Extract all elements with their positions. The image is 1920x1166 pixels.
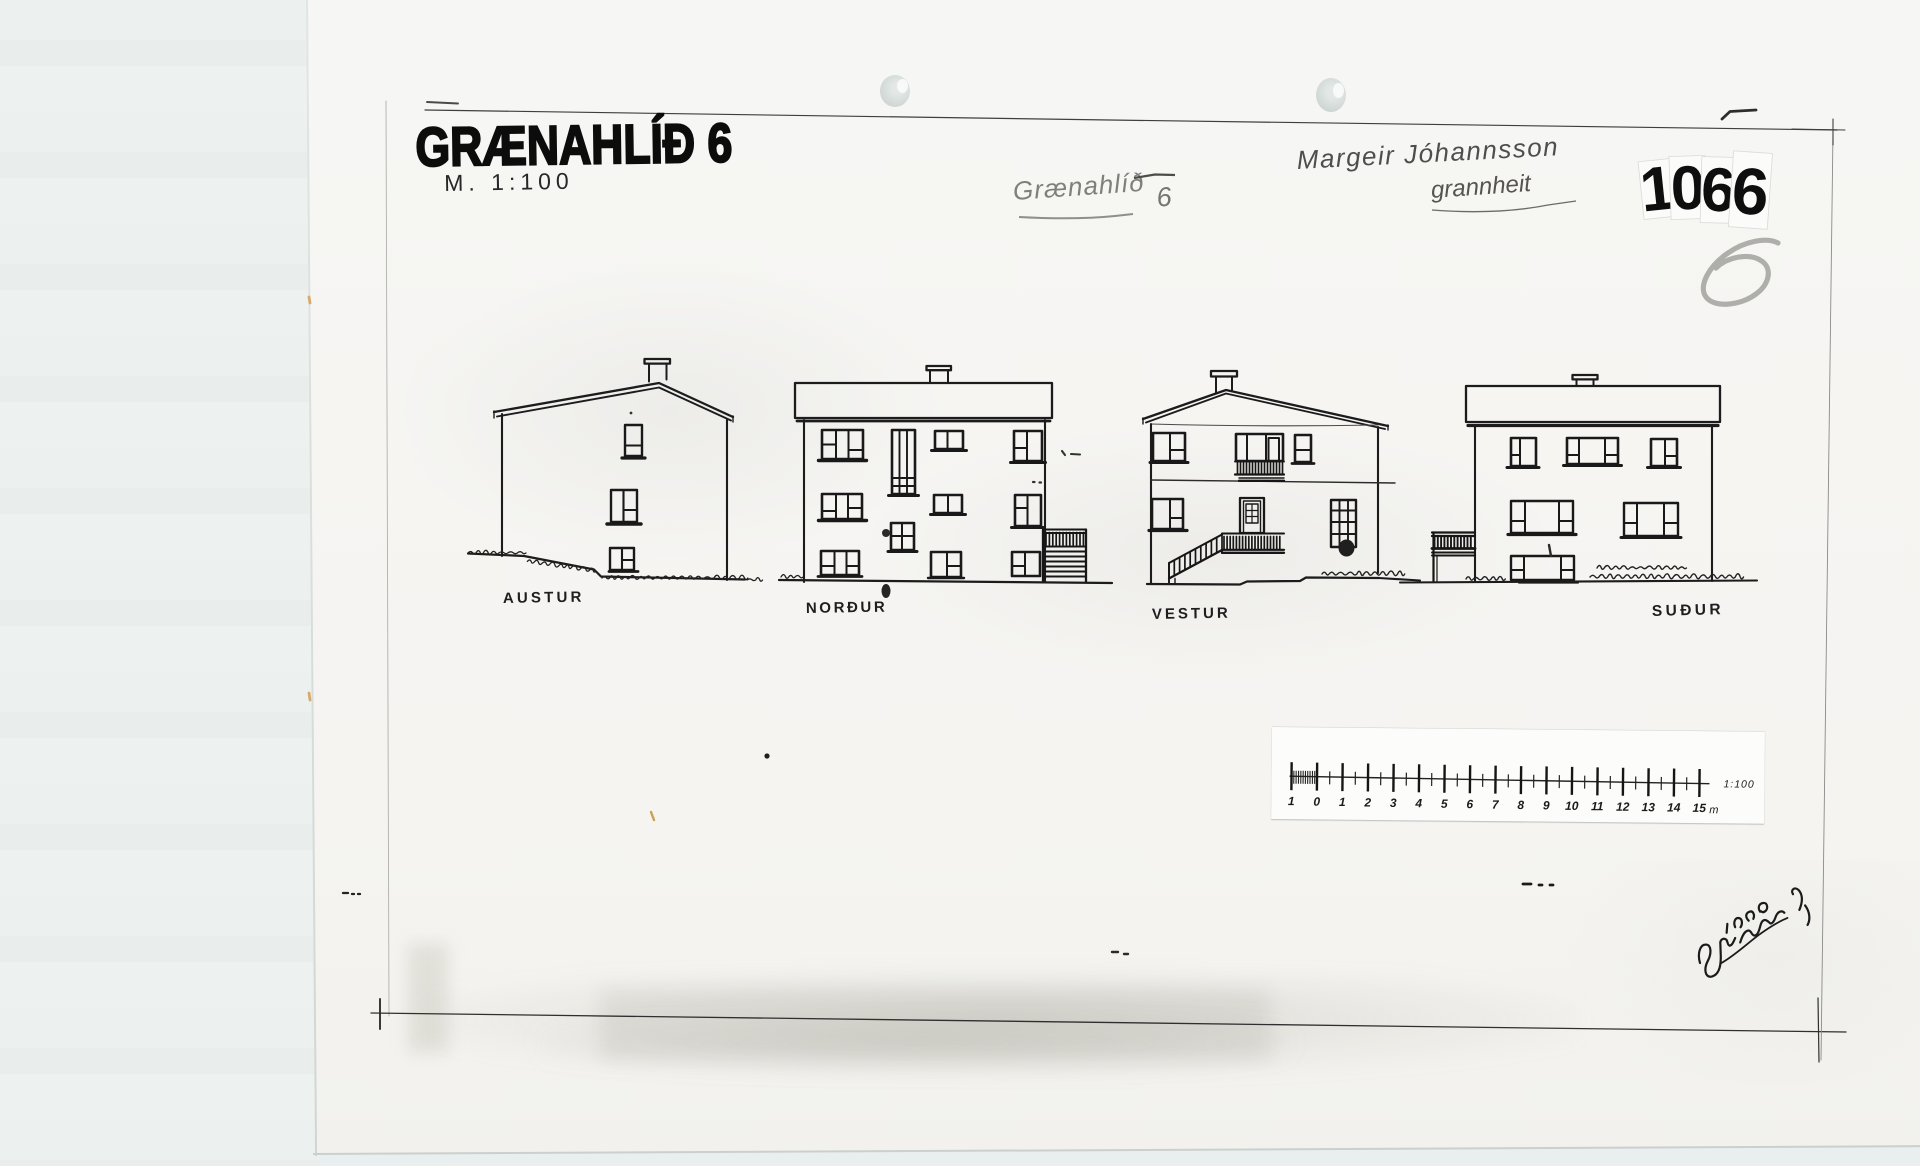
svg-text:1: 1 bbox=[1339, 795, 1346, 809]
svg-text:11: 11 bbox=[1591, 799, 1604, 813]
svg-text:6: 6 bbox=[1729, 153, 1771, 229]
svg-text:9: 9 bbox=[1543, 798, 1550, 812]
svg-text:AUSTUR: AUSTUR bbox=[503, 589, 585, 607]
svg-text:7: 7 bbox=[1492, 798, 1500, 812]
svg-text:5: 5 bbox=[1441, 797, 1448, 811]
svg-text:VESTUR: VESTUR bbox=[1152, 605, 1231, 623]
svg-text:0: 0 bbox=[1313, 795, 1320, 809]
svg-text:8: 8 bbox=[1517, 798, 1524, 812]
svg-text:1:100: 1:100 bbox=[1723, 778, 1754, 790]
svg-text:12: 12 bbox=[1616, 800, 1630, 814]
svg-text:3: 3 bbox=[1390, 796, 1397, 810]
svg-text:10: 10 bbox=[1565, 799, 1579, 813]
svg-text:15: 15 bbox=[1692, 801, 1706, 815]
svg-text:14: 14 bbox=[1667, 800, 1681, 814]
svg-text:4: 4 bbox=[1414, 796, 1422, 810]
svg-text:6: 6 bbox=[1466, 797, 1473, 811]
svg-text:2: 2 bbox=[1363, 795, 1371, 809]
svg-text:m: m bbox=[1709, 804, 1718, 816]
svg-text:13: 13 bbox=[1642, 800, 1656, 814]
svg-text:SUÐUR: SUÐUR bbox=[1652, 601, 1725, 620]
svg-text:1: 1 bbox=[1288, 794, 1295, 808]
svg-text:NORÐUR: NORÐUR bbox=[806, 599, 888, 617]
